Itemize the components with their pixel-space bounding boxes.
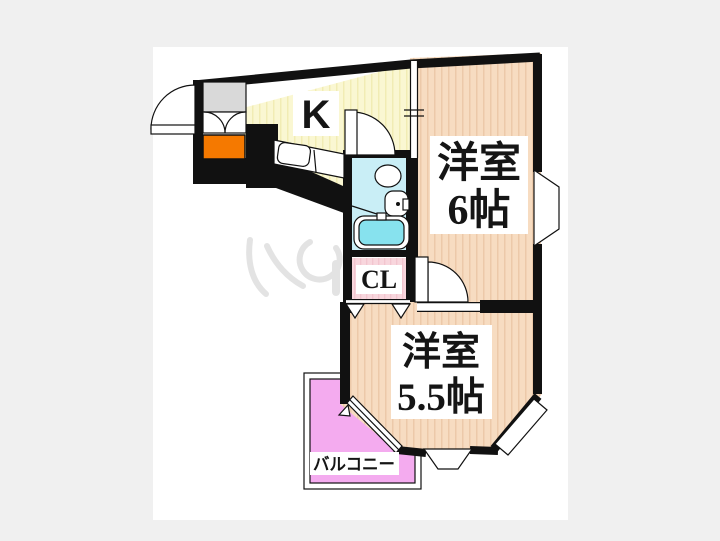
room6-name: 洋室 [437,140,521,187]
doorway-band [417,302,480,312]
room6-right-wall-upper [533,54,542,172]
room6-door-leaf [415,257,428,302]
room55-bottom-wall-left [397,450,426,453]
room-divider-wall [480,300,542,313]
washbasin-drain [396,202,400,206]
entrance-door-leaf [151,125,195,134]
kitchen-corner-wall [246,124,278,188]
room6-size: 6帖 [447,187,510,234]
bathroom-door-leaf [345,110,357,155]
floorplan-canvas: K 洋室 6帖 洋室 5.5帖 CL バルコニー [0,0,720,541]
kitchen-label: K [302,93,331,137]
room55-bottom-wall-right [470,450,498,451]
balcony-label: バルコニー [313,455,395,474]
room55-name: 洋室 [402,331,480,374]
room-divider-opening [417,302,480,312]
room55-size: 5.5帖 [397,376,485,419]
bath-closet-divider-wall [343,249,412,257]
kitchen-sink [277,142,312,167]
toilet [375,165,401,187]
bathtub-faucet [377,213,386,220]
bathtub [359,220,404,245]
entry-floor [203,82,246,112]
room6-right-wall-lower [533,244,542,304]
closet-label: CL [361,265,397,294]
floorplan-screenshot: K 洋室 6帖 洋室 5.5帖 CL バルコニー [0,0,720,541]
entry-bottom-wall [193,158,246,184]
bathroom [352,158,409,250]
washbasin-faucet [403,199,409,210]
room55-right-wall [533,302,542,394]
room55-left-wall [340,302,350,404]
shoe-box [203,135,245,159]
